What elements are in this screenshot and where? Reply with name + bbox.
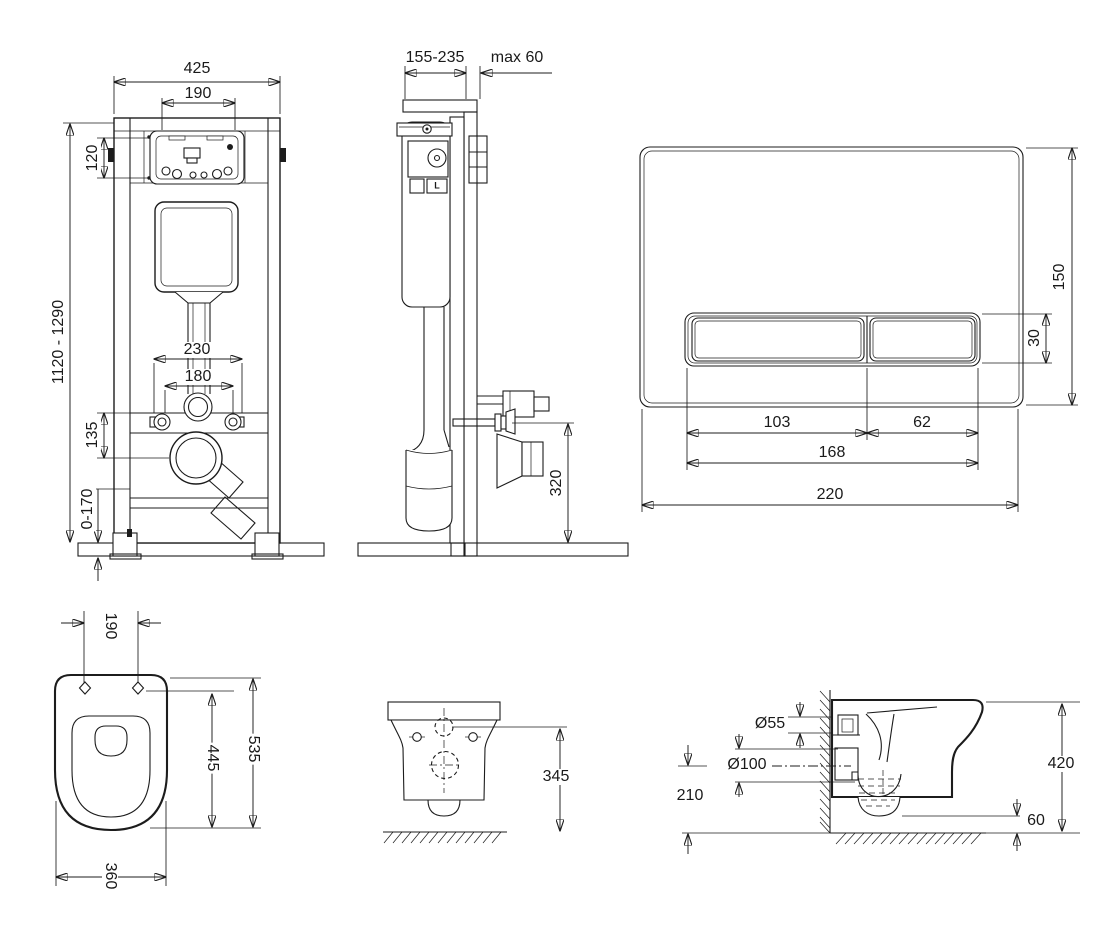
bolt-hole-left: [413, 733, 422, 742]
drawing-canvas: [0, 0, 1120, 930]
wall-anchor-left: [108, 148, 114, 162]
installation-drawing: 425 190 120 1120 - 1290 230 180 135 0-17…: [0, 0, 1120, 930]
flush-plate-view: [640, 147, 1078, 512]
dim-side-outlet-height: 320: [549, 468, 565, 499]
flush-button-large: [692, 318, 864, 361]
wall-band: [464, 112, 477, 556]
dim-frame-bolt-spacing-inner: 180: [183, 369, 214, 385]
frame-front-view: [63, 76, 324, 581]
bolt-hole-right: [469, 733, 478, 742]
flush-button-small: [870, 318, 975, 361]
bowl-front-view: [383, 702, 567, 843]
dim-bowlside-outlet-height: 210: [675, 788, 706, 804]
cistern-side: [402, 122, 450, 307]
dim-frame-width: 425: [182, 61, 213, 77]
dim-side-depth-range: 155-235: [404, 50, 467, 66]
top-rail: [403, 100, 477, 112]
dim-frame-opening-width: 190: [183, 86, 214, 102]
wall-bracket: [469, 136, 487, 183]
floor-band: [358, 543, 628, 556]
dim-bowlside-outlet-dia: Ø100: [725, 757, 768, 773]
dim-bowltop-bolt-spacing: 190: [102, 611, 118, 642]
dim-bowlside-clearance: 60: [1025, 813, 1047, 829]
bowl-top-view: [55, 611, 261, 886]
fill-valve: [184, 148, 200, 158]
dim-bowlside-inlet-dia: Ø55: [753, 716, 787, 732]
dim-plate-button-height: 30: [1027, 327, 1043, 349]
dim-plate-width: 220: [815, 487, 846, 503]
dim-bowlside-height: 420: [1046, 756, 1077, 772]
dim-side-wall-max: max 60: [489, 50, 545, 66]
dim-plate-large-button-width: 103: [762, 415, 793, 431]
dim-bowltop-bolt-to-front: 445: [204, 743, 220, 774]
cistern: [155, 202, 238, 292]
dim-frame-opening-height: 120: [85, 143, 101, 174]
dim-plate-buttons-width: 168: [817, 445, 848, 461]
flush-plate: [640, 147, 1023, 407]
dim-bowltop-length: 535: [245, 734, 261, 765]
frame-side-view: [358, 66, 628, 556]
leg-left: [113, 533, 137, 556]
dim-frame-height-range: 1120 - 1290: [51, 298, 67, 386]
leg-right: [255, 533, 279, 556]
outlet-sleeve: [406, 450, 452, 531]
label-cistern-lever: L: [434, 182, 440, 191]
dim-bowltop-width: 360: [102, 861, 118, 892]
dim-bowlfront-height: 345: [541, 769, 572, 785]
drain-funnel: [497, 434, 522, 488]
wall-anchor-right: [280, 148, 286, 162]
dim-plate-height: 150: [1052, 262, 1068, 293]
dim-frame-outlet-offset: 135: [85, 420, 101, 451]
outlet-socket: [835, 748, 858, 780]
dim-frame-leg-range: 0-170: [80, 487, 96, 532]
dim-frame-bolt-spacing-outer: 230: [182, 342, 213, 358]
dim-plate-small-button-width: 62: [911, 415, 933, 431]
